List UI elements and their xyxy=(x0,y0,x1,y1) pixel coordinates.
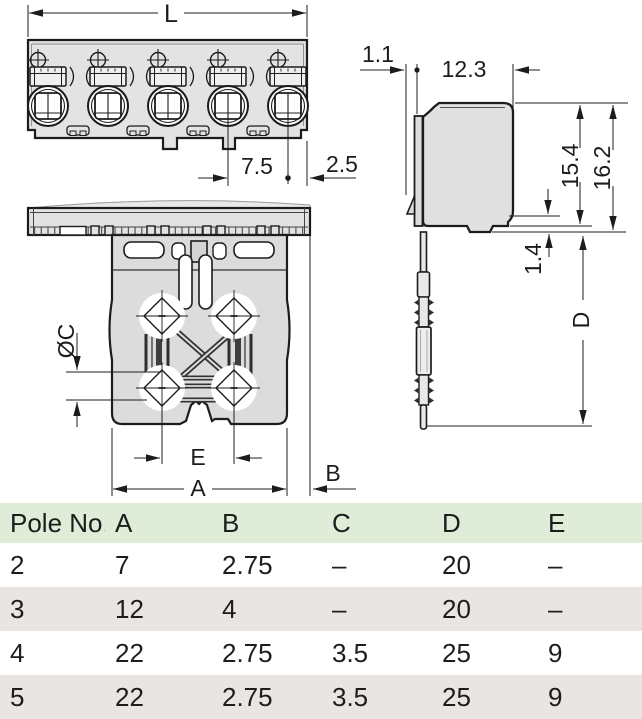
table-header-pole-no: Pole No. xyxy=(0,508,105,539)
table-cell: 22 xyxy=(105,682,212,713)
dim-label-diameter: ØC xyxy=(53,324,79,359)
solder-pin xyxy=(414,232,434,429)
table-header-a: A xyxy=(105,508,212,539)
side-view-body xyxy=(423,103,513,232)
table-cell: 12 xyxy=(105,594,212,625)
table-header-c: C xyxy=(322,508,432,539)
dimension-table: Pole No. A B C D E 2 7 2.75 – 20 – 3 12 … xyxy=(0,503,642,719)
table-cell: 25 xyxy=(432,682,538,713)
dim-label-e: E xyxy=(190,444,205,470)
dim-label-step: 1.4 xyxy=(520,243,546,275)
table-cell: 4 xyxy=(0,638,105,669)
table-cell: 7 xyxy=(105,550,212,581)
table-cell: 20 xyxy=(432,594,538,625)
table-row: 3 12 4 – 20 – xyxy=(0,587,642,631)
technical-drawing: L 7.5 2.5 xyxy=(0,0,642,503)
table-cell: 9 xyxy=(538,682,642,713)
dim-label-offset: 1.1 xyxy=(362,41,394,67)
dim-label-L: L xyxy=(164,0,178,28)
table-row: 5 22 2.75 3.5 25 9 xyxy=(0,675,642,719)
dim-label-height-body: 15.4 xyxy=(557,143,583,188)
table-cell: 22 xyxy=(105,638,212,669)
table-cell: 2.75 xyxy=(212,682,322,713)
table-cell: – xyxy=(322,594,432,625)
dim-label-pin-length: D xyxy=(568,312,594,329)
table-cell: 5 xyxy=(0,682,105,713)
table-header-d: D xyxy=(432,508,538,539)
table-cell: 3 xyxy=(0,594,105,625)
table-cell: 4 xyxy=(212,594,322,625)
table-cell: 2.75 xyxy=(212,550,322,581)
dim-label-b: B xyxy=(325,460,340,486)
dim-label-a: A xyxy=(190,475,206,501)
table-cell: 3.5 xyxy=(322,638,432,669)
table-cell: 9 xyxy=(538,638,642,669)
table-cell: – xyxy=(538,594,642,625)
table-cell: 2.75 xyxy=(212,638,322,669)
dim-label-pitch: 7.5 xyxy=(241,153,273,179)
table-row: 2 7 2.75 – 20 – xyxy=(0,543,642,587)
table-cell: 3.5 xyxy=(322,682,432,713)
bottom-view-drawing: ØC E A B xyxy=(28,201,356,501)
table-row: 4 22 2.75 3.5 25 9 xyxy=(0,631,642,675)
dim-label-height-total: 16.2 xyxy=(589,146,615,191)
table-cell: 25 xyxy=(432,638,538,669)
table-header-row: Pole No. A B C D E xyxy=(0,503,642,543)
datasheet-dimension-drawing: L 7.5 2.5 xyxy=(0,0,642,719)
dim-label-edge: 2.5 xyxy=(326,151,358,177)
table-cell: – xyxy=(538,550,642,581)
table-cell: 2 xyxy=(0,550,105,581)
dim-label-depth: 12.3 xyxy=(442,56,487,82)
table-header-e: E xyxy=(538,508,642,539)
table-header-b: B xyxy=(212,508,322,539)
table-cell: – xyxy=(322,550,432,581)
front-view-drawing: L 7.5 2.5 xyxy=(27,0,358,186)
side-view-drawing: 1.1 12.3 15.4 16.2 1.4 D xyxy=(360,41,628,429)
table-cell: 20 xyxy=(432,550,538,581)
